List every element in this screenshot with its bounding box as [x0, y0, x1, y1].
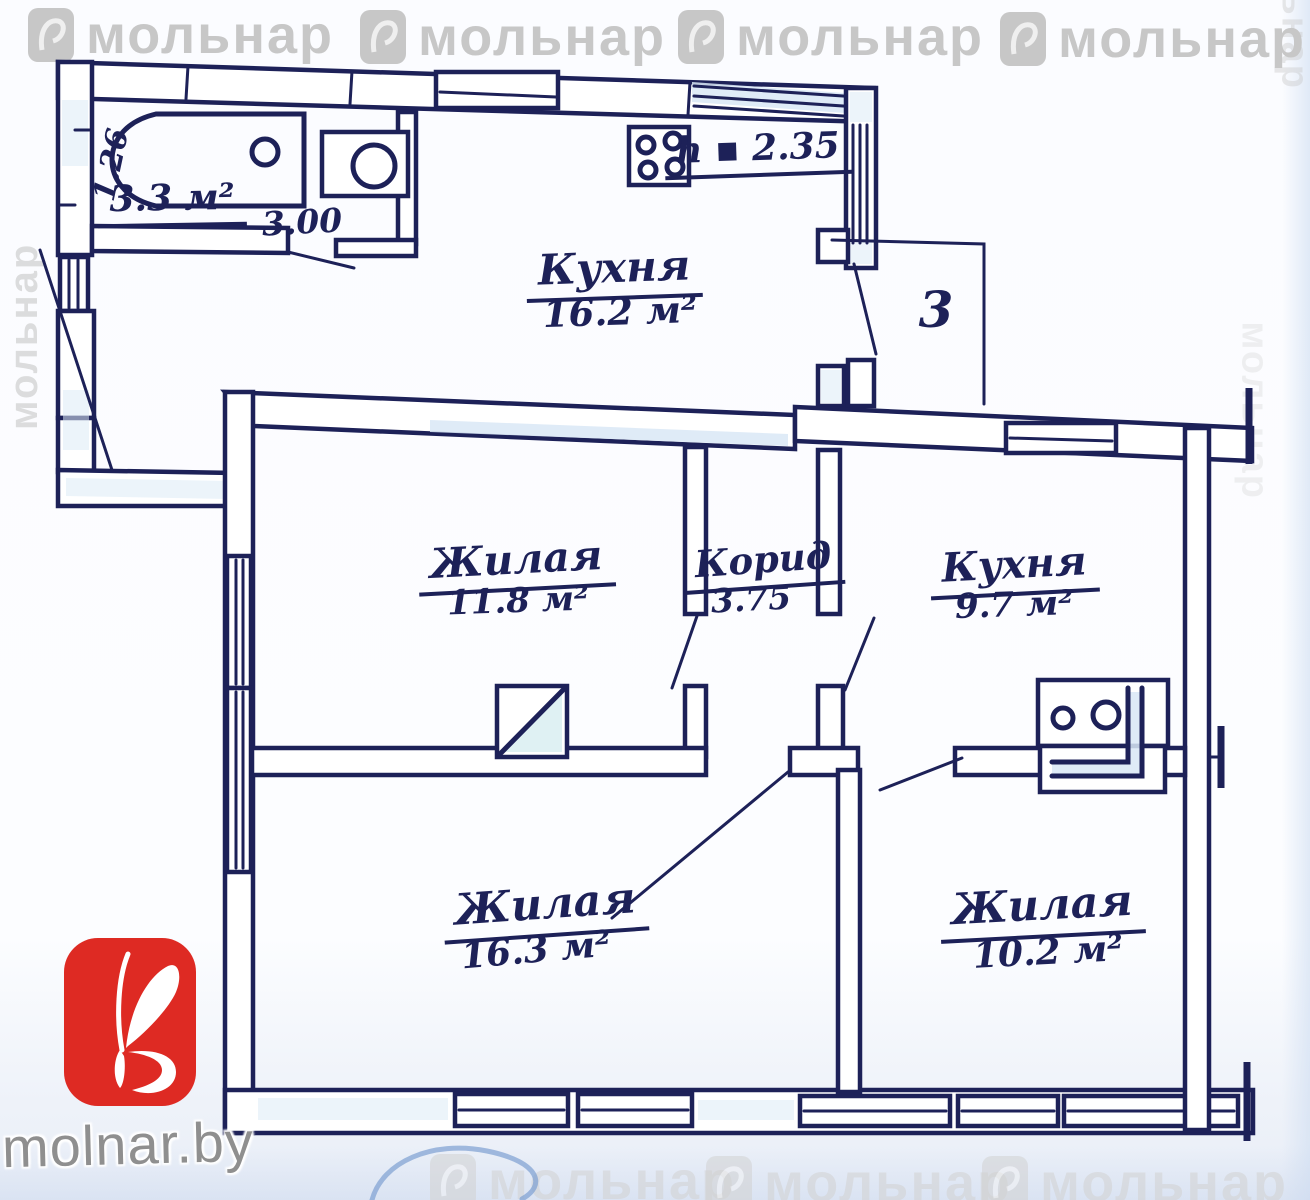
room-area-kitchen-upper: 16.2 м² [542, 291, 698, 333]
room-name-kitchen-2: Кухня [928, 541, 1099, 590]
kitchen-sink-icon [1038, 680, 1168, 792]
room-name-kitchen-upper: Кухня [525, 244, 703, 292]
washbasin-icon [322, 132, 408, 196]
bathroom-width-dimension: 3.00 [261, 203, 343, 240]
room-area-kitchen-2: 9.7 м² [954, 586, 1073, 624]
room-name-living-3: Жилая [938, 879, 1145, 933]
room-name-living-2: Жилая [441, 876, 649, 933]
scanned-floor-plan: мольнар мольнар мольнар мольнар мольнар … [0, 0, 1310, 1200]
pen-scribble [372, 1148, 536, 1200]
room-area-living-3: 10.2 м² [972, 930, 1124, 974]
ceiling-height-label: h ▪ 2.35 [664, 127, 852, 170]
unit-number-label: 3 [919, 285, 954, 335]
room-name-corridor: Корид [681, 536, 844, 584]
closet-icon [497, 686, 567, 757]
agency-logo [64, 938, 196, 1111]
room-area-living-1: 11.8 м² [447, 582, 590, 621]
agency-site-label: molnar.by [1, 1109, 254, 1181]
room-area-corridor: 3.75 [710, 580, 792, 617]
butterfly-logo-icon [64, 938, 196, 1106]
